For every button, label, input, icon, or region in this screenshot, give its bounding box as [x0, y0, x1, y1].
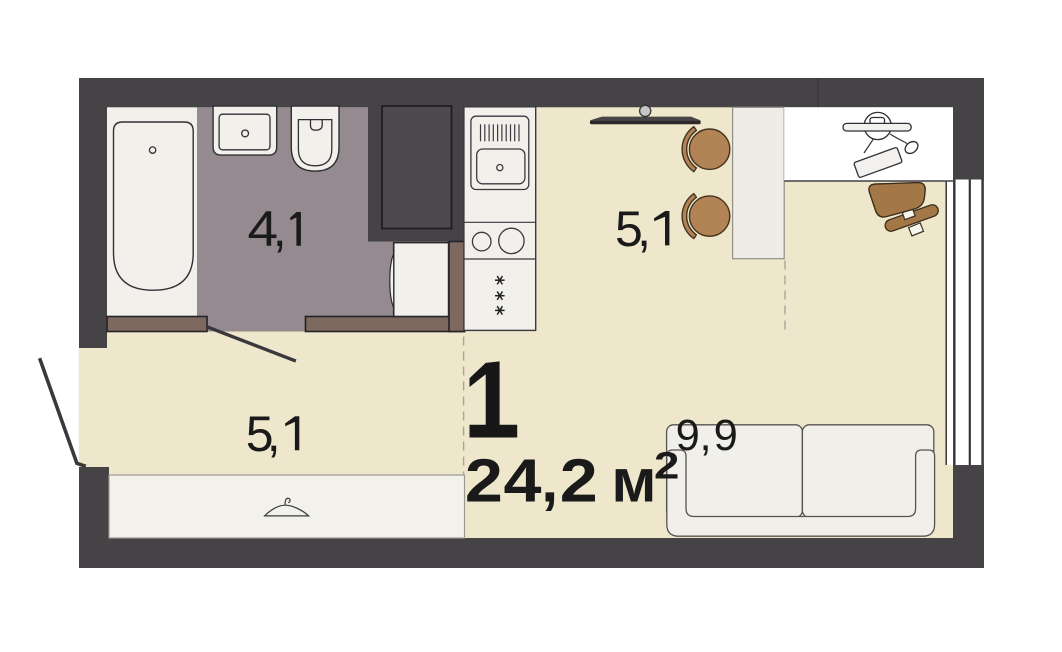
- svg-text:,: ,: [637, 201, 651, 257]
- svg-text:,: ,: [541, 447, 558, 515]
- svg-text:,: ,: [700, 412, 712, 460]
- svg-text:2: 2: [465, 446, 503, 515]
- svg-text:м: м: [611, 447, 656, 515]
- svg-text:2: 2: [560, 446, 598, 515]
- svg-text:,: ,: [273, 201, 287, 257]
- svg-text:2: 2: [654, 444, 679, 487]
- svg-text:,: ,: [267, 406, 281, 462]
- svg-text:9: 9: [714, 412, 738, 460]
- svg-text:4: 4: [504, 446, 542, 515]
